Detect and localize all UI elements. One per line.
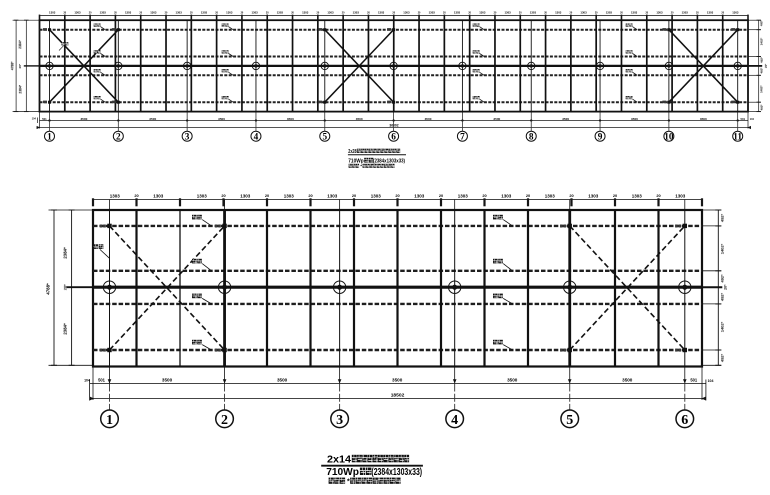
svg-text:1303: 1303 bbox=[251, 11, 258, 15]
svg-text:3500: 3500 bbox=[700, 117, 707, 121]
svg-text:1303: 1303 bbox=[458, 193, 469, 198]
svg-text:1303: 1303 bbox=[429, 11, 436, 15]
svg-text:6: 6 bbox=[681, 413, 688, 428]
svg-text:501: 501 bbox=[98, 377, 106, 382]
svg-text:9: 9 bbox=[598, 132, 603, 142]
svg-text:492*: 492* bbox=[720, 213, 725, 222]
svg-text:1303: 1303 bbox=[284, 193, 295, 198]
svg-text:104: 104 bbox=[750, 118, 755, 121]
svg-text:3500: 3500 bbox=[149, 117, 156, 121]
svg-text:1303: 1303 bbox=[632, 193, 643, 198]
svg-text:492*: 492* bbox=[720, 292, 725, 301]
svg-text:2x14: 2x14 bbox=[327, 454, 351, 465]
svg-text:2384*: 2384* bbox=[63, 247, 68, 259]
svg-text:2384*: 2384* bbox=[18, 84, 22, 93]
svg-text:3500: 3500 bbox=[562, 117, 569, 121]
svg-text:1303: 1303 bbox=[201, 11, 208, 15]
svg-text:1303: 1303 bbox=[606, 11, 613, 15]
svg-text:492*: 492* bbox=[760, 104, 764, 111]
svg-text:3500: 3500 bbox=[287, 117, 294, 121]
svg-text:3500: 3500 bbox=[631, 117, 638, 121]
svg-text:3500: 3500 bbox=[162, 377, 173, 382]
svg-text:2384*: 2384* bbox=[63, 323, 68, 335]
svg-text:4788*: 4788* bbox=[46, 283, 51, 295]
svg-text:1303: 1303 bbox=[414, 193, 425, 198]
svg-text:1303: 1303 bbox=[226, 11, 233, 15]
svg-text:1402*: 1402* bbox=[760, 37, 764, 45]
svg-text:1303: 1303 bbox=[555, 11, 562, 15]
svg-text:1303: 1303 bbox=[545, 193, 556, 198]
svg-text:1303: 1303 bbox=[371, 193, 382, 198]
svg-text:1303: 1303 bbox=[501, 193, 512, 198]
svg-text:492*: 492* bbox=[720, 353, 725, 362]
svg-text:18502: 18502 bbox=[391, 393, 405, 399]
svg-text:20*: 20* bbox=[724, 284, 728, 290]
svg-text:1303: 1303 bbox=[588, 193, 599, 198]
svg-text:710Wp: 710Wp bbox=[326, 467, 359, 478]
svg-text:5: 5 bbox=[322, 132, 327, 142]
svg-text:3500: 3500 bbox=[507, 377, 518, 382]
svg-text:3500: 3500 bbox=[392, 377, 403, 382]
svg-text:20: 20 bbox=[482, 193, 486, 198]
svg-text:1303: 1303 bbox=[378, 11, 385, 15]
svg-text:3500: 3500 bbox=[622, 377, 633, 382]
svg-text:104: 104 bbox=[708, 379, 714, 383]
svg-text:3500: 3500 bbox=[356, 117, 363, 121]
svg-text:11: 11 bbox=[733, 132, 742, 142]
svg-text:20: 20 bbox=[526, 193, 530, 198]
svg-text:20: 20 bbox=[308, 193, 312, 198]
svg-text:20: 20 bbox=[221, 193, 225, 198]
svg-text:3500: 3500 bbox=[425, 117, 432, 121]
svg-text:20: 20 bbox=[569, 193, 573, 198]
svg-text:*: * bbox=[347, 479, 350, 486]
svg-text:492*: 492* bbox=[760, 56, 764, 63]
svg-text:1303: 1303 bbox=[100, 11, 107, 15]
svg-text:492*: 492* bbox=[760, 19, 764, 26]
svg-text:1303: 1303 bbox=[110, 193, 121, 198]
svg-text:1303: 1303 bbox=[479, 11, 486, 15]
svg-text:1402*: 1402* bbox=[720, 321, 725, 332]
svg-text:1402*: 1402* bbox=[760, 85, 764, 93]
svg-text:1303: 1303 bbox=[176, 11, 183, 15]
svg-text:1303: 1303 bbox=[675, 193, 686, 198]
svg-text:1303: 1303 bbox=[656, 11, 663, 15]
svg-text:1303: 1303 bbox=[125, 11, 132, 15]
svg-text:20: 20 bbox=[439, 193, 443, 198]
svg-text:1402*: 1402* bbox=[720, 243, 725, 254]
svg-text:1303: 1303 bbox=[240, 193, 251, 198]
svg-text:1303: 1303 bbox=[74, 11, 81, 15]
svg-text:7: 7 bbox=[460, 132, 465, 142]
svg-text:4: 4 bbox=[254, 132, 259, 142]
svg-text:501: 501 bbox=[741, 117, 746, 121]
svg-text:1303: 1303 bbox=[153, 193, 164, 198]
svg-text:1303: 1303 bbox=[197, 193, 208, 198]
svg-text:1303: 1303 bbox=[682, 11, 689, 15]
svg-text:492*: 492* bbox=[720, 274, 725, 283]
svg-text:4788*: 4788* bbox=[10, 61, 14, 70]
svg-text:1303: 1303 bbox=[150, 11, 157, 15]
svg-text:2x28: 2x28 bbox=[348, 149, 356, 155]
svg-text:2384*: 2384* bbox=[18, 39, 22, 48]
svg-text:1303: 1303 bbox=[353, 11, 360, 15]
svg-text:1303: 1303 bbox=[302, 11, 309, 15]
svg-text:20: 20 bbox=[656, 193, 660, 198]
svg-text:3500: 3500 bbox=[218, 117, 225, 121]
svg-text:1303: 1303 bbox=[49, 11, 56, 15]
svg-text:3500: 3500 bbox=[277, 377, 288, 382]
svg-text:6: 6 bbox=[391, 132, 396, 142]
svg-text:492*: 492* bbox=[760, 67, 764, 74]
svg-text:3500: 3500 bbox=[80, 117, 87, 121]
svg-text:104: 104 bbox=[32, 118, 37, 121]
svg-text:8: 8 bbox=[529, 132, 534, 142]
svg-text:501: 501 bbox=[690, 377, 698, 382]
svg-text:(2384x1303x33): (2384x1303x33) bbox=[373, 159, 405, 165]
svg-text:501: 501 bbox=[42, 117, 47, 121]
svg-text:1303: 1303 bbox=[505, 11, 512, 15]
svg-text:20: 20 bbox=[613, 193, 617, 198]
svg-text:20*: 20* bbox=[63, 284, 68, 290]
svg-text:3: 3 bbox=[336, 413, 343, 428]
svg-text:1303: 1303 bbox=[707, 11, 714, 15]
svg-text:10: 10 bbox=[664, 132, 674, 142]
svg-text:1303: 1303 bbox=[454, 11, 461, 15]
svg-text:1: 1 bbox=[106, 413, 113, 428]
svg-text:1303: 1303 bbox=[631, 11, 638, 15]
svg-text:(2384x1303x33): (2384x1303x33) bbox=[371, 467, 422, 478]
svg-text:3: 3 bbox=[185, 132, 190, 142]
svg-text:1303: 1303 bbox=[580, 11, 587, 15]
svg-text:1303: 1303 bbox=[327, 11, 334, 15]
svg-text:2: 2 bbox=[116, 132, 121, 142]
svg-text:1303: 1303 bbox=[732, 11, 739, 15]
svg-text:20: 20 bbox=[352, 193, 356, 198]
svg-text:5: 5 bbox=[566, 413, 573, 428]
svg-text:4: 4 bbox=[451, 413, 458, 428]
svg-text:2: 2 bbox=[221, 413, 228, 428]
svg-text:20: 20 bbox=[395, 193, 399, 198]
svg-text:104: 104 bbox=[84, 378, 90, 382]
svg-text:36002: 36002 bbox=[389, 123, 398, 127]
svg-text:3500: 3500 bbox=[493, 117, 500, 121]
svg-text:20: 20 bbox=[134, 193, 138, 198]
svg-text:1303: 1303 bbox=[530, 11, 537, 15]
svg-text:1: 1 bbox=[47, 132, 52, 142]
svg-text:1303: 1303 bbox=[277, 11, 284, 15]
svg-text:1303: 1303 bbox=[327, 193, 338, 198]
svg-text:1303: 1303 bbox=[403, 11, 410, 15]
svg-text:20: 20 bbox=[265, 193, 269, 198]
